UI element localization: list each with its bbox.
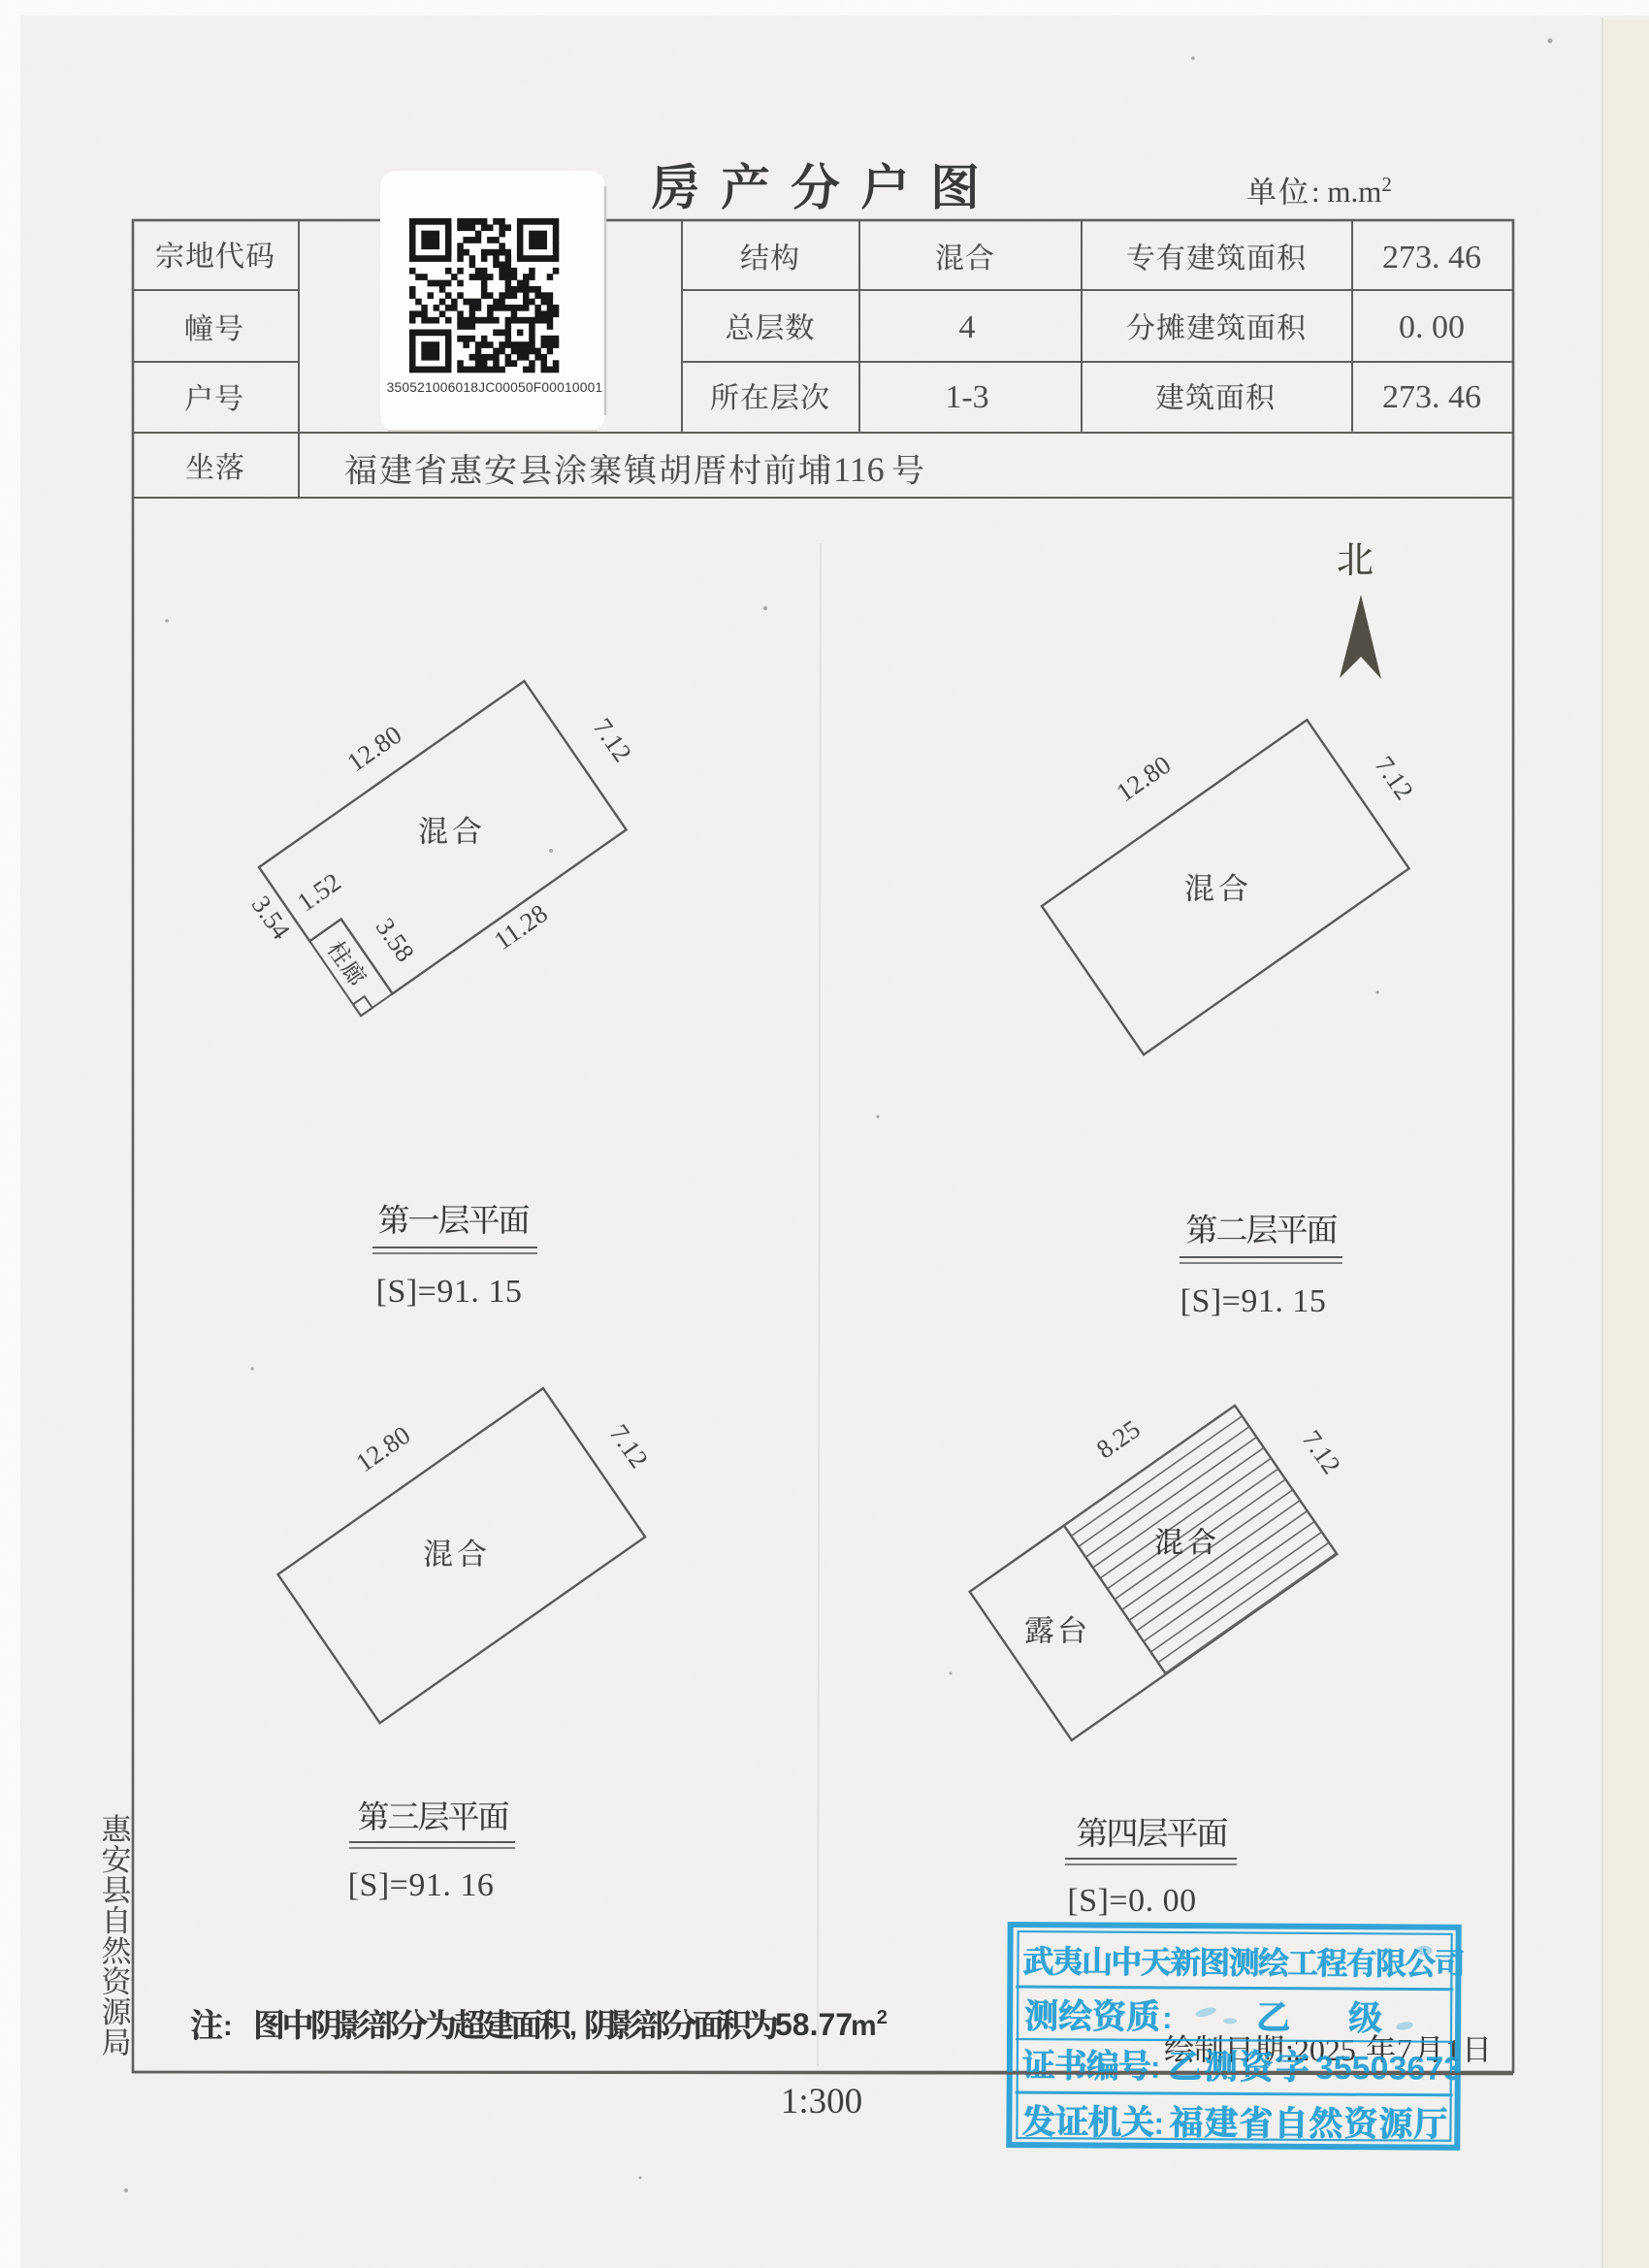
svg-text:1-3: 1-3: [945, 379, 988, 415]
svg-text:58.77: 58.77: [775, 2007, 853, 2042]
svg-text:350521006018JC00050F00010001: 350521006018JC00050F00010001: [387, 380, 603, 395]
svg-text:[S]=0. 00: [S]=0. 00: [1067, 1883, 1196, 1919]
svg-text:1:300: 1:300: [781, 2082, 862, 2122]
svg-text::: :: [1150, 2050, 1161, 2085]
svg-text::: :: [223, 2011, 233, 2042]
svg-text::: :: [1162, 2000, 1173, 2035]
svg-text:0. 00: 0. 00: [1399, 309, 1465, 345]
svg-text:273. 46: 273. 46: [1382, 240, 1481, 275]
svg-text:: m.m2: : m.m2: [1311, 173, 1392, 209]
svg-text:[S]=91. 16: [S]=91. 16: [348, 1867, 495, 1903]
svg-text::: :: [1153, 2106, 1164, 2141]
svg-text:116: 116: [833, 450, 885, 489]
svg-text:273. 46: 273. 46: [1382, 379, 1481, 415]
svg-text:[S]=91. 15: [S]=91. 15: [376, 1274, 523, 1310]
svg-text:[S]=91. 15: [S]=91. 15: [1180, 1283, 1327, 1319]
svg-text:35503673: 35503673: [1315, 2050, 1463, 2088]
svg-text:4: 4: [959, 309, 976, 345]
svg-text:,: ,: [569, 2011, 577, 2042]
